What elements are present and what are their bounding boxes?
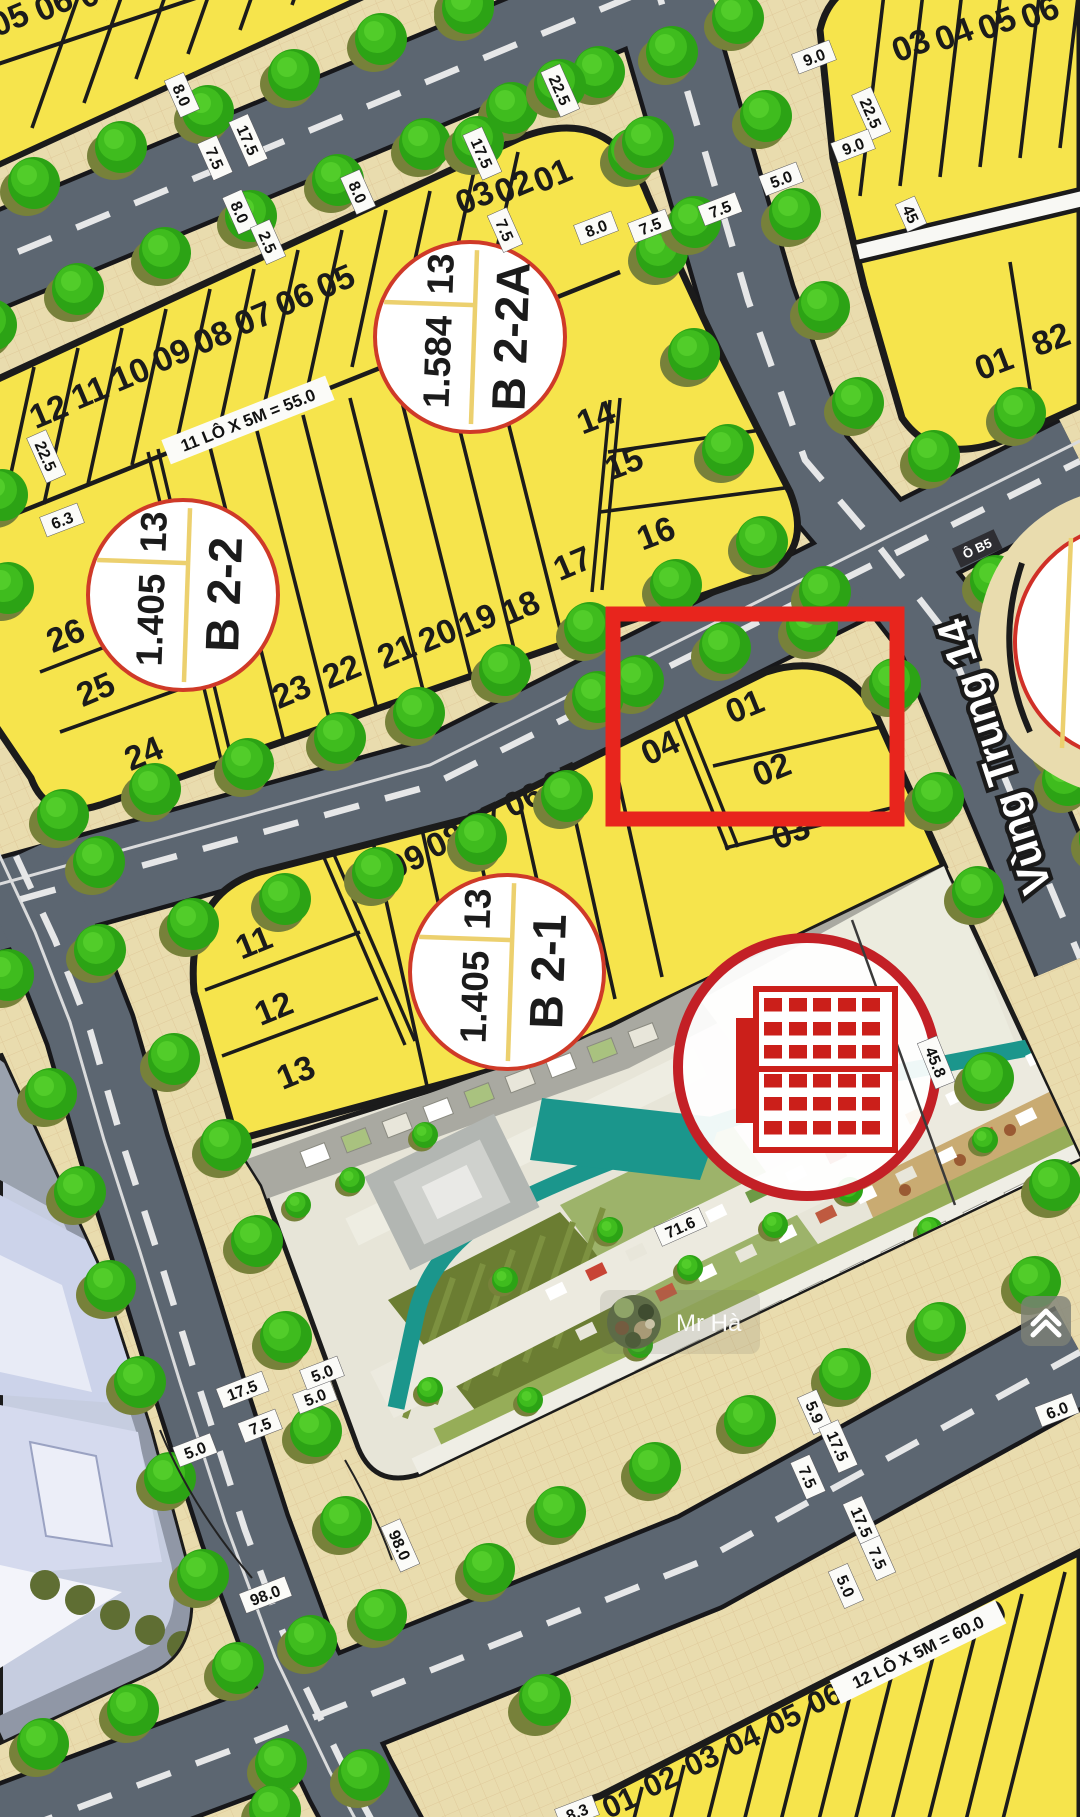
- svg-text:1.584: 1.584: [416, 314, 460, 408]
- svg-text:B 2-1: B 2-1: [519, 913, 576, 1030]
- svg-text:1.405: 1.405: [453, 950, 497, 1044]
- svg-text:B 2-2: B 2-2: [195, 536, 252, 653]
- svg-text:13: 13: [132, 511, 174, 554]
- svg-text:1.405: 1.405: [129, 573, 173, 667]
- svg-text:13: 13: [419, 253, 461, 296]
- svg-text:Mr Hà: Mr Hà: [676, 1310, 742, 1337]
- svg-text:13: 13: [456, 888, 498, 931]
- svg-text:B 2-2A: B 2-2A: [481, 261, 539, 412]
